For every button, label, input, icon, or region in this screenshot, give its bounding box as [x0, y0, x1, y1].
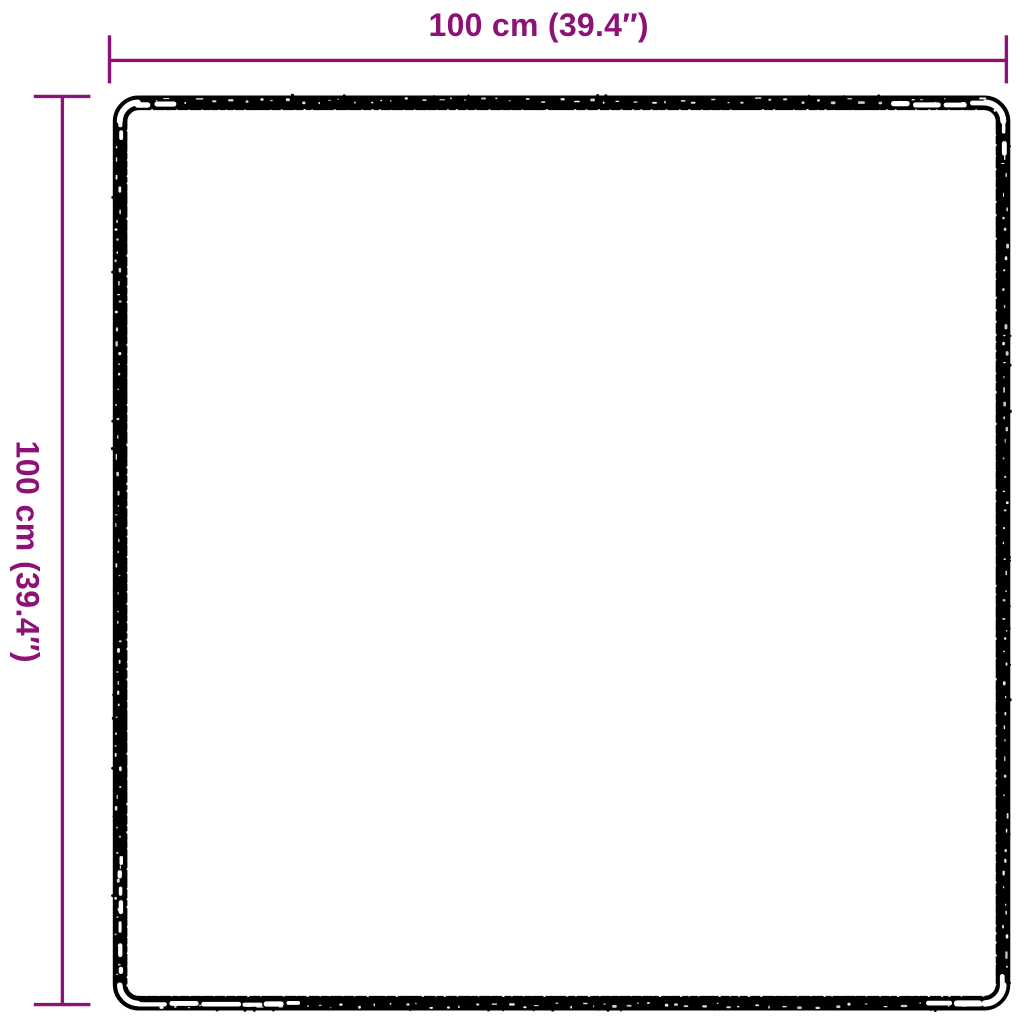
svg-text:100 cm (39.4″): 100 cm (39.4″) [10, 441, 46, 663]
svg-text:100 cm (39.4″): 100 cm (39.4″) [429, 7, 649, 43]
